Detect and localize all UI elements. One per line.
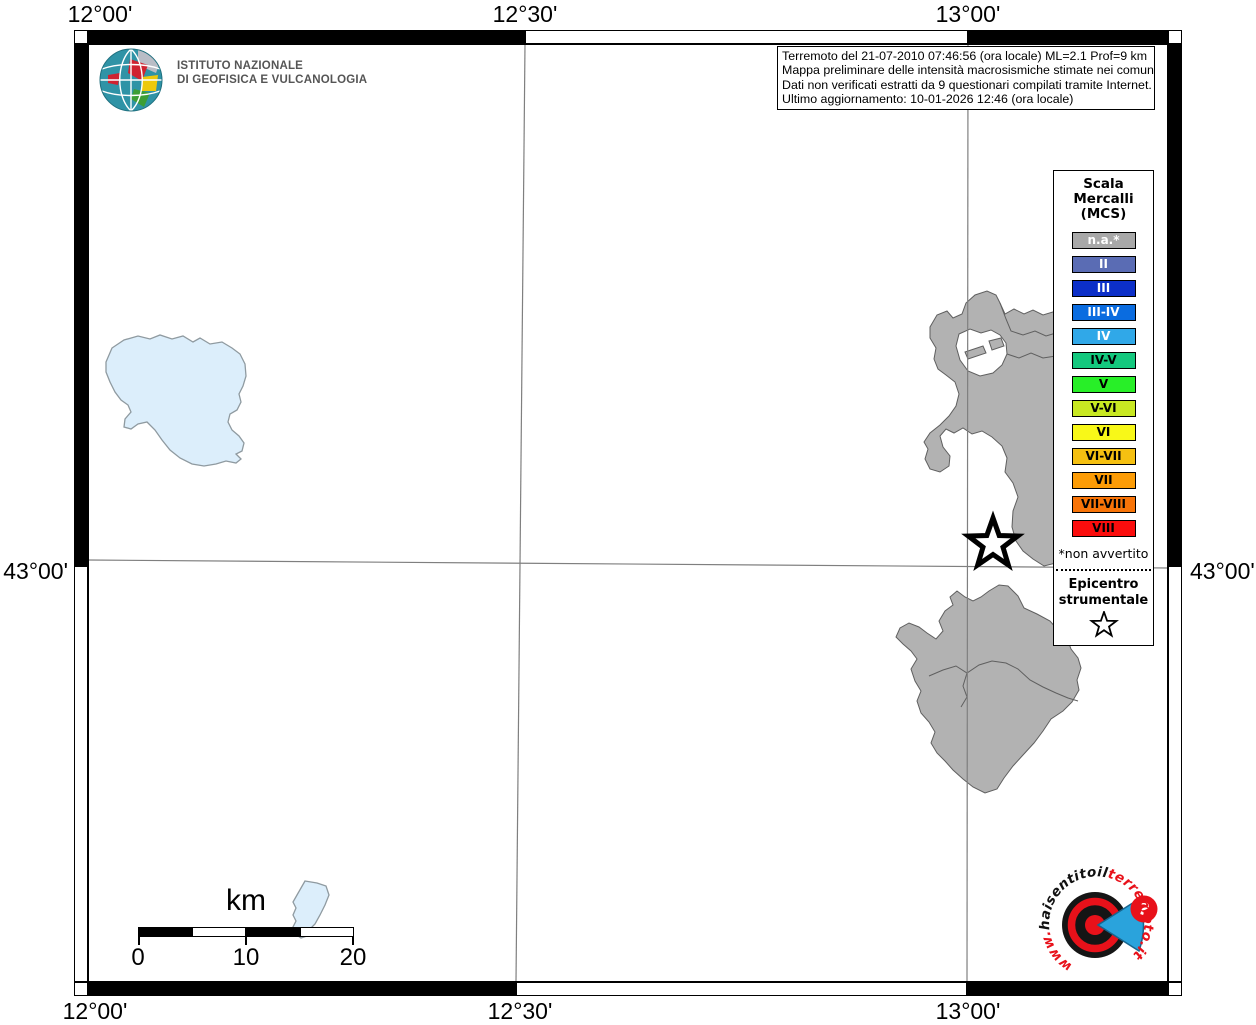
legend-swatch-viii: VIII	[1072, 520, 1136, 537]
frame-segment	[88, 30, 525, 44]
frame-segment	[74, 566, 88, 982]
legend-epicenter-label: Epicentro	[1054, 577, 1153, 593]
axis-label-bottom-13-00: 13°00'	[908, 998, 1028, 1025]
legend-swatch-v: V	[1072, 376, 1136, 393]
ingv-logo: ISTITUTO NAZIONALE DI GEOFISICA E VULCAN…	[98, 47, 367, 113]
legend-title-line: Mercalli	[1054, 192, 1153, 207]
map-frame-right	[1168, 44, 1182, 982]
lake-trasimeno	[106, 335, 246, 466]
legend-swatch-iii-iv: III-IV	[1072, 304, 1136, 321]
legend-footnote: *non avvertito	[1054, 546, 1153, 561]
legend-swatch-iii: III	[1072, 280, 1136, 297]
frame-segment	[74, 44, 88, 566]
info-line-updated: Ultimo aggiornamento: 10-01-2026 12:46 (…	[782, 92, 1150, 106]
legend-swatch-vii: VII	[1072, 472, 1136, 489]
map-scale-bar	[138, 927, 354, 937]
ingv-name-line2: DI GEOFISICA E VULCANOLOGIA	[177, 74, 367, 88]
legend-swatch-v-vi: V-VI	[1072, 400, 1136, 417]
gridline-12-30	[516, 44, 525, 982]
frame-corner	[1168, 30, 1182, 44]
map-area	[88, 44, 1168, 982]
legend-divider	[1056, 569, 1151, 571]
axis-label-right-43-00: 43°00'	[1190, 558, 1255, 585]
frame-corner	[74, 982, 88, 996]
info-line-map-type: Mappa preliminare delle intensità macros…	[782, 63, 1150, 77]
legend-swatch-na: n.a.*	[1072, 232, 1136, 249]
scale-tick-label-0: 0	[98, 944, 178, 972]
scale-segment	[246, 927, 300, 937]
scale-segment	[192, 927, 246, 937]
map-border	[89, 45, 1168, 982]
legend-title-line: Scala	[1054, 177, 1153, 192]
legend-epicenter-star-icon	[1089, 611, 1119, 638]
axis-label-top-13-00: 13°00'	[908, 1, 1028, 28]
scale-unit-label: km	[206, 884, 286, 918]
axis-label-left-43-00: 43°00'	[0, 558, 68, 585]
frame-segment	[1168, 44, 1182, 566]
legend-swatch-iv: IV	[1072, 328, 1136, 345]
legend-title-line: (MCS)	[1054, 207, 1153, 222]
frame-segment	[516, 982, 967, 996]
legend-epicenter-label: strumentale	[1054, 593, 1153, 609]
ingv-name-line1: ISTITUTO NAZIONALE	[177, 60, 367, 74]
scale-tick-label-20: 20	[313, 944, 393, 972]
info-line-event: Terremoto del 21-07-2010 07:46:56 (ora l…	[782, 49, 1150, 63]
axis-label-bottom-12-30: 12°30'	[460, 998, 580, 1025]
map-frame-bottom	[74, 982, 1182, 996]
scale-tick-label-10: 10	[206, 944, 286, 972]
haisentitoilterremoto-logo: ? www.haisentitoilterremoto.it	[1032, 852, 1172, 997]
axis-label-top-12-00: 12°00'	[40, 1, 160, 28]
scale-segment	[300, 927, 354, 937]
axis-label-top-12-30: 12°30'	[465, 1, 585, 28]
frame-segment	[968, 30, 1168, 44]
axis-label-bottom-12-00: 12°00'	[35, 998, 155, 1025]
frame-corner	[74, 30, 88, 44]
info-line-data-source: Dati non verificati estratti da 9 questi…	[782, 78, 1150, 92]
map-frame-top	[74, 30, 1182, 44]
earthquake-info-box: Terremoto del 21-07-2010 07:46:56 (ora l…	[777, 46, 1155, 110]
legend-swatch-ii: II	[1072, 256, 1136, 273]
frame-segment	[88, 982, 516, 996]
legend-swatch-vi: VI	[1072, 424, 1136, 441]
scale-segment	[138, 927, 192, 937]
frame-segment	[525, 30, 968, 44]
map-frame-left	[74, 44, 88, 982]
gridline-13-00	[967, 44, 968, 982]
epicenter-star-marker	[968, 518, 1017, 565]
legend-swatch-vii-viii: VII-VIII	[1072, 496, 1136, 513]
legend-swatch-vi-vii: VI-VII	[1072, 448, 1136, 465]
mercalli-scale-legend: Scala Mercalli (MCS) n.a.* II III III-IV…	[1053, 170, 1154, 646]
ingv-globe-icon	[98, 47, 168, 113]
legend-swatch-iv-v: IV-V	[1072, 352, 1136, 369]
